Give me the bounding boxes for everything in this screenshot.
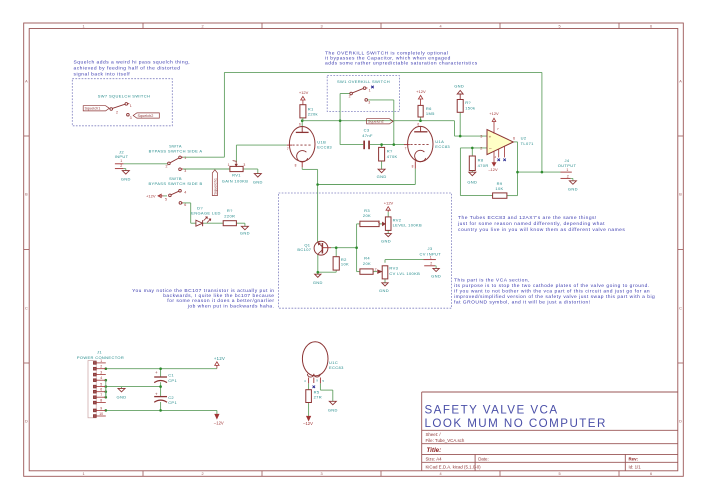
svg-text:+: + [155,391,158,396]
svg-text:5: 5 [558,472,560,476]
svg-text:R?: R? [465,100,471,105]
svg-text:–: – [489,146,492,151]
svg-text:3: 3 [184,169,186,173]
svg-text:2: 2 [201,472,203,476]
svg-text:9: 9 [100,406,102,410]
svg-text:470K: 470K [387,154,398,159]
svg-text:GND: GND [379,288,389,293]
svg-text:Date:: Date: [478,457,489,462]
svg-text:Squelch2: Squelch2 [368,120,384,124]
svg-text:adds some rather unpredictable: adds some rather unpredictable saturatio… [325,61,478,67]
svg-text:+: + [489,134,492,139]
svg-text:6: 6 [650,24,652,28]
svg-text:B: B [25,192,28,196]
svg-text:4: 4 [100,376,102,380]
svg-text:GND: GND [454,83,464,88]
svg-text:GND: GND [313,280,323,285]
svg-text:GND: GND [568,186,578,191]
svg-text:Sheet: /: Sheet: / [426,432,442,437]
svg-text:BC107: BC107 [297,247,311,252]
svg-text:RV3: RV3 [389,266,398,271]
svg-text:R9: R9 [497,181,503,186]
svg-text:J4: J4 [565,158,570,163]
svg-text:1: 1 [120,159,122,163]
svg-text:1: 1 [82,24,84,28]
svg-text:1: 1 [369,88,371,92]
svg-text:20K: 20K [363,213,371,218]
svg-text:The Tubes ECC83 and 12AX7's ar: The Tubes ECC83 and 12AX7's are the same… [458,215,597,221]
svg-text:ECC83: ECC83 [435,144,450,149]
svg-text:its purpose is to stop the two: its purpose is to stop the two cathode p… [454,283,650,289]
svg-text:4: 4 [439,24,441,28]
svg-text:3: 3 [320,24,322,28]
svg-text:ECC83: ECC83 [329,365,344,370]
svg-text:2: 2 [430,262,432,266]
svg-text:GND: GND [431,274,441,279]
svg-text:R?: R? [387,148,393,153]
svg-text:1: 1 [184,156,186,160]
svg-text:3: 3 [130,116,132,120]
svg-text:4: 4 [184,190,186,194]
svg-text:CP1: CP1 [168,378,177,383]
svg-text:CP1: CP1 [168,400,177,405]
svg-text:10K: 10K [341,261,349,266]
svg-text:J1: J1 [97,349,102,354]
svg-text:+12V: +12V [214,356,225,361]
svg-text:2: 2 [166,164,168,168]
svg-text:1: 1 [228,163,230,167]
svg-text:7: 7 [405,147,407,151]
svg-text:1M5: 1M5 [426,111,435,116]
svg-text:6: 6 [184,203,186,207]
svg-text:backwards, I quite like the bc: backwards, I quite like the bc107 becaus… [163,293,274,299]
svg-text:B: B [679,192,682,196]
svg-text:LOOK MUM NO COMPUTER: LOOK MUM NO COMPUTER [425,417,607,430]
svg-text:ECC83: ECC83 [317,144,332,149]
svg-text:1: 1 [100,359,102,363]
svg-text:BYPASS SWITCH SIDE B: BYPASS SWITCH SIDE B [148,181,202,186]
svg-text:47nF: 47nF [362,133,373,138]
svg-text:7: 7 [287,147,289,151]
svg-text:SAFETY VALVE VCA: SAFETY VALVE VCA [425,404,559,417]
svg-text:+12V: +12V [384,201,394,206]
svg-text:+12V: +12V [146,193,156,198]
svg-text:R6: R6 [426,106,432,111]
svg-text:–12V: –12V [303,421,313,426]
svg-text:signal back into itself: signal back into itself [74,71,131,77]
svg-text:2: 2 [349,95,351,99]
svg-text:CV LVL 100KB: CV LVL 100KB [389,271,420,276]
svg-text:20K: 20K [363,261,371,266]
svg-text:GND: GND [381,239,391,244]
svg-text:6: 6 [417,123,419,127]
svg-text:3: 3 [480,135,482,139]
svg-text:Id: 1/1: Id: 1/1 [629,464,642,469]
svg-text:–12V: –12V [214,421,224,426]
svg-text:Squelch2: Squelch2 [138,114,154,118]
svg-text:150k: 150k [465,105,475,110]
svg-text:–12V: –12V [488,167,498,172]
svg-text:27R: 27R [314,395,322,400]
svg-text:6: 6 [513,137,515,141]
svg-text:+: + [155,370,158,375]
svg-text:C: C [679,306,682,310]
svg-text:LEVEL 100KB: LEVEL 100KB [393,223,422,228]
svg-text:5: 5 [322,379,324,383]
svg-text:SW7 SQUELCH SWITCH: SW7 SQUELCH SWITCH [98,93,150,98]
svg-text:5: 5 [100,383,102,387]
svg-text:A: A [679,79,682,83]
svg-text:Rev:: Rev: [629,457,639,462]
svg-text:4: 4 [439,472,441,476]
svg-text:2: 2 [201,24,203,28]
svg-text:fat GROUND symbol, and it will: fat GROUND symbol, and it will be just a… [454,299,591,305]
svg-text:SW1 OVERKILL SWITCH: SW1 OVERKILL SWITCH [337,79,390,84]
svg-text:1: 1 [430,256,432,260]
svg-text:Squelch1: Squelch1 [213,178,217,195]
svg-text:220k: 220k [308,112,318,117]
svg-text:+12V: +12V [416,89,426,94]
svg-text:Title:: Title: [427,447,442,454]
svg-text:2: 2 [100,365,102,369]
svg-text:6: 6 [299,122,301,126]
svg-text:5: 5 [558,24,560,28]
svg-text:C: C [25,306,28,310]
svg-text:You may notice the BC107 trans: You may notice the BC107 transistor is a… [132,288,274,294]
svg-text:1: 1 [566,168,568,172]
svg-text:Squelch adds a weird hi pass s: Squelch adds a weird hi pass squelch thi… [74,59,191,65]
svg-text:3: 3 [368,101,370,105]
svg-text:Size: A4: Size: A4 [426,457,443,462]
svg-text:470R: 470R [478,163,489,168]
svg-text:just for some reason named dif: just for some reason named differently, … [457,221,605,227]
svg-text:2: 2 [378,220,380,224]
svg-text:A: A [25,79,28,83]
svg-text:1: 1 [82,472,84,476]
svg-text:GAIN 100KB: GAIN 100KB [222,178,249,183]
svg-text:D: D [679,419,682,423]
svg-text:U2: U2 [521,136,527,141]
svg-text:This part is the VCA section,: This part is the VCA section, [454,277,530,283]
svg-text:6: 6 [650,472,652,476]
svg-text:GND: GND [240,231,250,236]
svg-text:achieved by feeding half of th: achieved by feeding half of the distorte… [74,65,181,71]
svg-text:GND: GND [121,177,131,182]
svg-text:3: 3 [320,472,322,476]
svg-text:8: 8 [100,399,102,403]
svg-text:D: D [25,419,28,423]
svg-text:10K: 10K [495,186,503,191]
svg-text:3: 3 [100,371,102,375]
svg-text:GND: GND [377,174,387,179]
svg-text:+12V: +12V [489,111,499,116]
svg-text:country you live in you will k: country you live in you will know them a… [458,227,625,233]
svg-text:8: 8 [295,164,297,168]
svg-text:2: 2 [116,110,118,114]
svg-text:If you want to not bother with: If you want to not bother with the vca p… [454,288,650,294]
svg-text:improved/simplified version of: improved/simplified version of the safet… [454,294,655,300]
svg-text:J3: J3 [428,246,433,251]
svg-text:+12V: +12V [299,90,309,95]
svg-text:1: 1 [130,104,132,108]
svg-text:9: 9 [316,378,318,382]
svg-text:5: 5 [165,198,167,202]
svg-text:R?: R? [227,208,233,213]
svg-text:GND: GND [467,180,477,185]
svg-text:GND: GND [117,394,127,399]
svg-text:8: 8 [412,164,414,168]
svg-text:3: 3 [243,163,245,167]
svg-text:GND: GND [328,407,338,412]
svg-text:for some reason it does a bett: for some reason it does a better/gnarlie… [167,298,274,304]
svg-text:2: 2 [375,268,377,272]
svg-text:2: 2 [120,164,122,168]
svg-text:GND: GND [253,179,263,184]
svg-text:BYPASS SWITCH SIDE A: BYPASS SWITCH SIDE A [149,149,203,154]
svg-text:10: 10 [99,412,103,416]
svg-text:File: Tube_VCA.sch: File: Tube_VCA.sch [426,438,465,443]
svg-text:ENGAGE LED: ENGAGE LED [191,211,221,216]
svg-text:220R: 220R [224,213,235,218]
svg-text:2: 2 [480,146,482,150]
svg-text:TL071: TL071 [521,141,535,146]
svg-text:7: 7 [100,393,102,397]
svg-text:job when put in backwards haha: job when put in backwards haha. [187,303,275,309]
svg-text:KiCad E.D.A. kicad (5.1.0-0): KiCad E.D.A. kicad (5.1.0-0) [426,464,482,469]
svg-text:Squelch1: Squelch1 [85,107,101,111]
svg-text:it bypasses the Capacitor, whi: it bypasses the Capacitor, which when en… [325,55,451,61]
svg-text:RV1: RV1 [232,173,241,178]
svg-text:4: 4 [304,379,306,383]
svg-text:2: 2 [567,174,569,178]
svg-text:6: 6 [100,388,102,392]
